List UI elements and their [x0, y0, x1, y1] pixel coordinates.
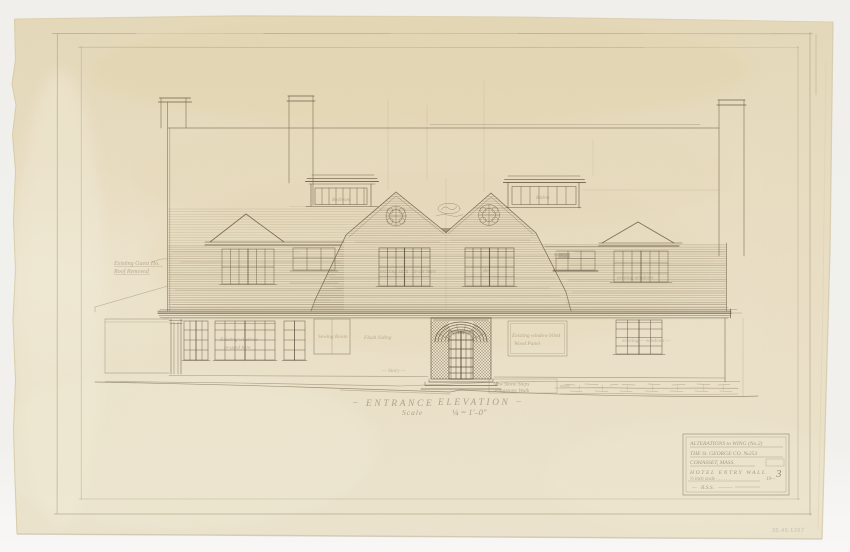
svg-text:Wood Panel: Wood Panel [514, 341, 541, 347]
svg-text:existing sash · re-set here: existing sash · re-set here [380, 269, 436, 275]
svg-text:35.45.1267: 35.45.1267 [772, 528, 805, 534]
svg-text:— R.S.S. ———: — R.S.S. ——— [691, 485, 733, 491]
svg-text:3: 3 [775, 468, 782, 480]
svg-text:— Story —: — Story — [381, 368, 406, 374]
svg-text:≈≈≈: ≈≈≈ [560, 384, 571, 390]
svg-text:THE St. GEORGE CO. №253: THE St. GEORGE CO. №253 [690, 451, 757, 457]
svg-text:ALTERATIONS to WING (No.2): ALTERATIONS to WING (No.2) [689, 440, 763, 447]
svg-text:existing windows: existing windows [617, 275, 653, 281]
svg-text:Bedrm: Bedrm [536, 196, 550, 201]
svg-text:Roof Removed: Roof Removed [113, 268, 150, 275]
svg-text:exist'g: exist'g [554, 253, 567, 258]
svg-text:Sewing Room: Sewing Room [318, 334, 348, 340]
svg-text:re-used here: re-used here [224, 345, 251, 351]
svg-text:19—: 19— [766, 477, 776, 482]
svg-text:½ inch scale . . . . . .: ½ inch scale . . . . . . [690, 477, 730, 482]
svg-text:do.: do. [483, 268, 490, 274]
svg-text:Existing window blind: Existing window blind [511, 333, 561, 339]
svg-text:New Stone Steps: New Stone Steps [492, 382, 529, 388]
svg-text:Existing windows: Existing windows [219, 337, 258, 343]
svg-text:existing — windows —: existing — windows — [622, 338, 671, 344]
svg-text:COHASSET, MASS.: COHASSET, MASS. [690, 460, 735, 466]
svg-text:Flagstone Walk: Flagstone Walk [494, 388, 530, 394]
svg-text:HOTEL ENTRY WALL: HOTEL ENTRY WALL [689, 470, 767, 476]
svg-text:Flush Siding: Flush Siding [363, 335, 392, 341]
svg-text:Scale: Scale [402, 408, 423, 417]
svg-text:Bedroom: Bedroom [332, 198, 351, 203]
svg-text:¼ = 1′–0″: ¼ = 1′–0″ [452, 407, 487, 417]
